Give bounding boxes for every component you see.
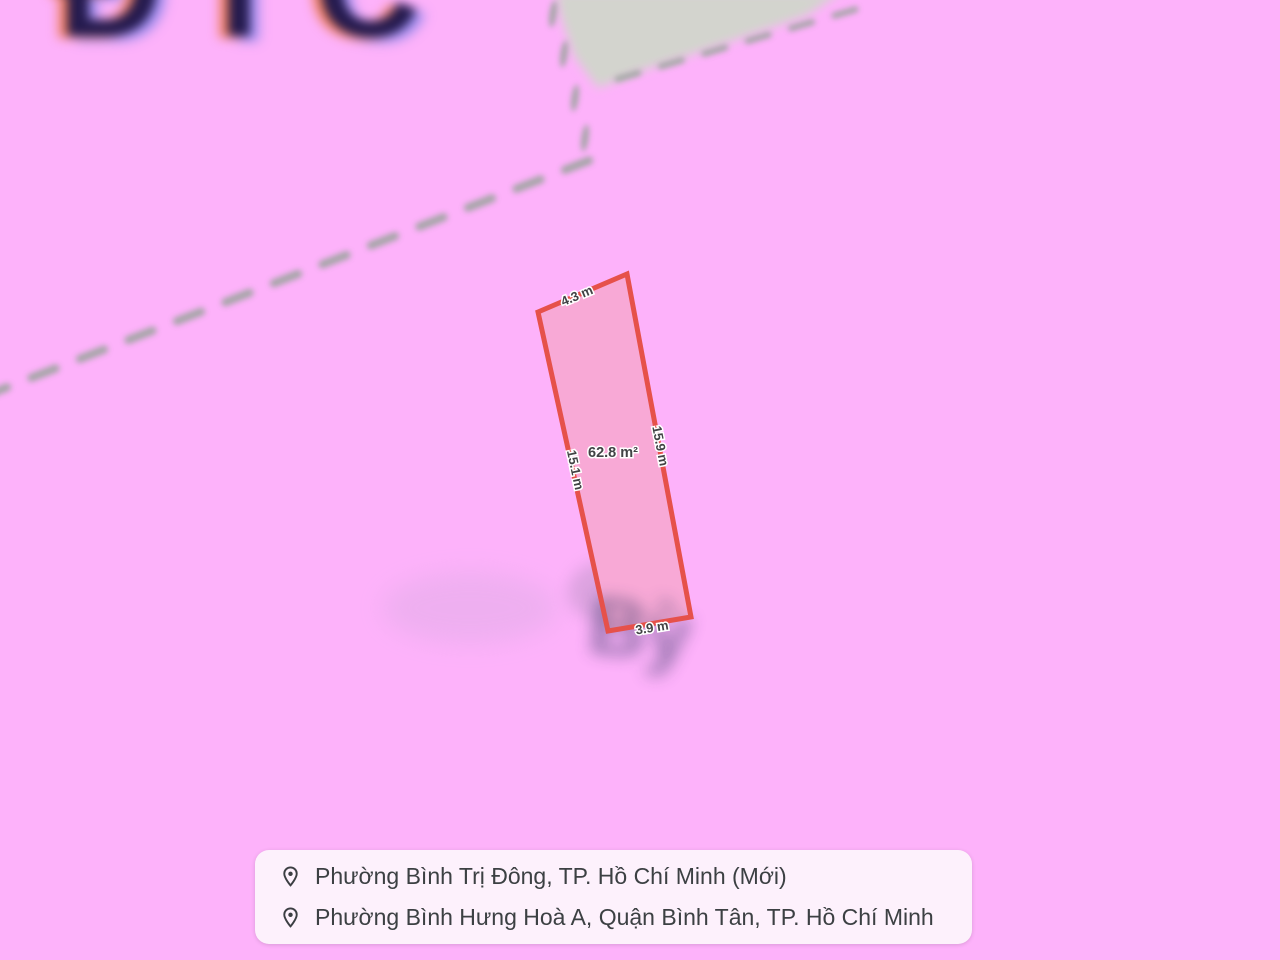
address-text: Phường Bình Trị Đông, TP. Hồ Chí Minh (M… [315,863,787,890]
map-view[interactable]: Bỳ 4.3 m 15.9 m 15.1 m 3.9 m 62.8 m² ĐTC… [0,0,1280,960]
address-text: Phường Bình Hưng Hoà A, Quận Bình Tân, T… [315,904,934,931]
address-row-new-ward[interactable]: Phường Bình Trị Đông, TP. Hồ Chí Minh (M… [279,856,954,897]
address-info-card: Phường Bình Trị Đông, TP. Hồ Chí Minh (M… [255,850,972,944]
map-canvas: Bỳ 4.3 m 15.9 m 15.1 m 3.9 m 62.8 m² [0,0,1280,960]
parcel-area-label: 62.8 m² [588,445,638,461]
address-row-old-ward[interactable]: Phường Bình Hưng Hoà A, Quận Bình Tân, T… [279,897,954,938]
location-pin-icon [279,906,302,929]
giant-blurred-map-label: ĐTC [58,0,452,70]
road-zone-polygon [556,0,842,88]
location-pin-icon [279,865,302,888]
map-smudge [382,572,558,644]
